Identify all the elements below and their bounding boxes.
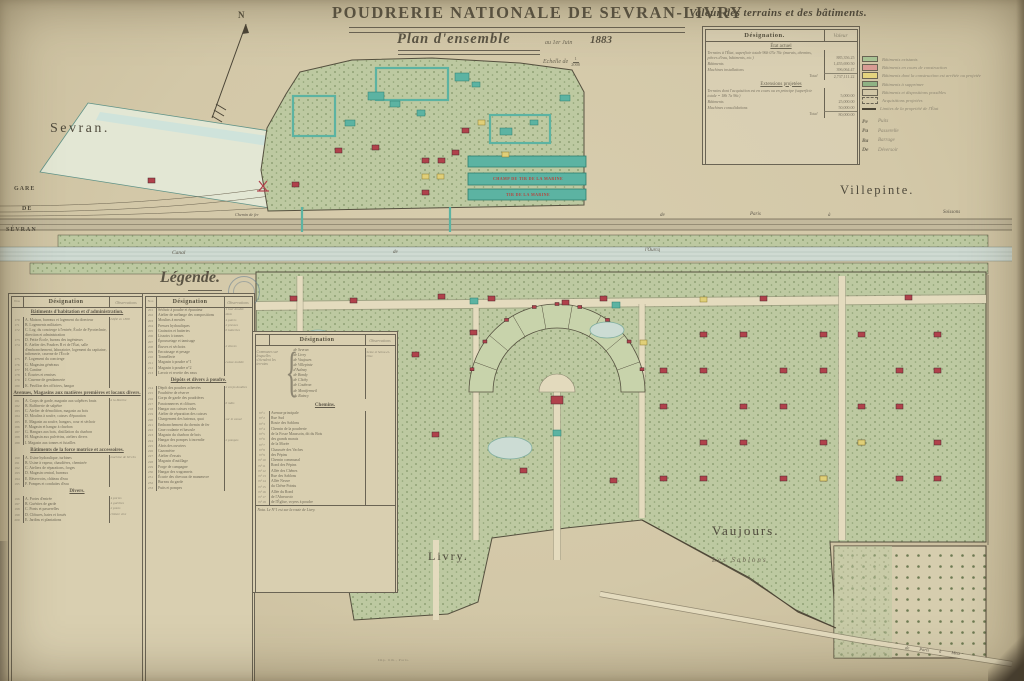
building-mark bbox=[335, 148, 342, 153]
building-mark bbox=[502, 152, 509, 157]
building-mark bbox=[530, 120, 538, 125]
legend-label: Bâtiments en cours de construction bbox=[882, 65, 947, 70]
building-mark bbox=[896, 368, 903, 373]
building-mark bbox=[700, 476, 707, 481]
legend-swatch bbox=[862, 97, 878, 104]
building-mark bbox=[372, 145, 379, 150]
building-mark bbox=[578, 305, 582, 308]
building-mark bbox=[532, 305, 536, 308]
legende-row: 200E. Jardins et plantations bbox=[12, 517, 143, 522]
map-date: au 1er Juin bbox=[545, 40, 572, 46]
building-mark bbox=[422, 158, 429, 163]
col-header-designation: Désignation. bbox=[706, 30, 824, 41]
building-mark bbox=[390, 101, 400, 107]
chemin-number: N°18 bbox=[256, 500, 270, 505]
legende-table-inner: NosDésignationObservationsBâtiments d'ha… bbox=[11, 296, 144, 681]
valeur-row-label: Terrains à l'État, superficie totale 96h… bbox=[706, 50, 824, 61]
communes-list: de Sevrande Livryde Vaujoursde Villepint… bbox=[294, 348, 365, 399]
abbrev-code: Ba bbox=[862, 138, 878, 144]
legende-table-header: NosDésignationObservations bbox=[146, 297, 252, 308]
building-mark bbox=[470, 368, 474, 371]
imprint: Imp. lith., Paris. bbox=[378, 658, 410, 662]
valeur-section-header: Extensions projetées bbox=[706, 80, 857, 88]
legende-section-header: Bâtiments d'habitation et d'administrati… bbox=[12, 308, 143, 318]
building-mark bbox=[700, 297, 707, 302]
color-legend-item: Limites de la propriété de l'État bbox=[862, 105, 1020, 113]
place-label-sevran: Sevran. bbox=[50, 121, 110, 137]
legend-label: Bâtiments dont la construction est arrêt… bbox=[882, 73, 981, 78]
building-mark bbox=[760, 296, 767, 301]
valeur-total-row: Total80,000.00 bbox=[706, 111, 857, 118]
row-observation bbox=[109, 440, 143, 445]
canal-label-3: l'Ourcq bbox=[645, 248, 660, 253]
building-mark bbox=[483, 340, 487, 343]
valeur-table: Désignation. Valeur État actuelTerrains … bbox=[702, 26, 860, 165]
building-mark bbox=[858, 440, 865, 445]
legende-row: 213Lavoir et recette des eaux bbox=[146, 371, 252, 376]
legende-table-inner: DésignationObservationsCommunes sur lesq… bbox=[255, 334, 396, 593]
col-header-no bbox=[256, 335, 270, 345]
col-header-no: Nos bbox=[12, 297, 24, 307]
row-designation: K. Pavillon des officiers, hangar bbox=[24, 383, 109, 388]
row-number: 172 bbox=[12, 328, 24, 338]
row-number: 174 bbox=[12, 343, 24, 357]
railway-label-1: de bbox=[660, 213, 665, 218]
building-mark bbox=[438, 158, 445, 163]
building-mark bbox=[600, 296, 607, 301]
color-legend-item: Bâtiments dont la construction est arrêt… bbox=[862, 72, 1020, 80]
building-mark bbox=[740, 440, 747, 445]
building-mark bbox=[640, 368, 644, 371]
building-mark bbox=[292, 182, 299, 187]
compass-n-label: N bbox=[238, 10, 245, 20]
legend-abbrev: PaPasserelle bbox=[862, 127, 1020, 137]
commune-item: du Raincy bbox=[294, 394, 365, 399]
legende-note: Nota. Le N°1 est sur la route de Livry. bbox=[256, 505, 395, 514]
plan-subtitle: Plan d'ensemble bbox=[397, 31, 511, 48]
col-header-no: Nos bbox=[146, 297, 157, 307]
abbrev-label: Puits bbox=[878, 119, 888, 124]
valeur-row-label: Terrains dont l'acquisition est en cours… bbox=[706, 88, 824, 99]
chemin-observation bbox=[365, 500, 395, 505]
valeur-row-value: 885,356.25 bbox=[824, 50, 857, 61]
map-sheet: N POUDRERIE NATIONALE DE SEVRAN-LIVRY Pl… bbox=[0, 0, 1024, 681]
railway-label-3: à bbox=[828, 213, 831, 218]
row-number: 180 bbox=[12, 383, 24, 388]
building-mark bbox=[417, 110, 425, 116]
scan-edge-right bbox=[1016, 0, 1024, 681]
col-header-designation: Désignation bbox=[157, 297, 224, 307]
valeur-total-label: Total bbox=[706, 111, 824, 118]
building-mark bbox=[562, 300, 569, 305]
canal-label-1: Canal bbox=[172, 250, 185, 256]
row-observation bbox=[109, 517, 143, 522]
legende-row: 180K. Pavillon des officiers, hangar bbox=[12, 383, 143, 388]
building-mark bbox=[660, 368, 667, 373]
legende-row: 174E. Atelier des Poudres B et de l'État… bbox=[12, 343, 143, 357]
chemin-row: N°18de l'Église, voyers à poudre bbox=[256, 500, 395, 505]
building-mark bbox=[905, 295, 912, 300]
row-observation bbox=[224, 485, 252, 490]
building-mark bbox=[820, 440, 827, 445]
communes-label: Communes sur lesquelles s'étendent les t… bbox=[256, 348, 286, 399]
abbrev-label: Déversoir bbox=[878, 148, 898, 153]
building-mark bbox=[605, 318, 609, 321]
building-mark bbox=[896, 404, 903, 409]
color-legend-item: Bâtiments existants bbox=[862, 55, 1020, 63]
legend-label: Bâtiments et dispositions possibles bbox=[882, 90, 946, 95]
valeur-row-value: 5,000.00 bbox=[824, 88, 857, 99]
legende-section-header: Bâtiments de la force motrice et accesso… bbox=[12, 445, 143, 455]
valeur-row: Terrains dont l'acquisition est en cours… bbox=[706, 88, 857, 99]
legende-table-2: NosDésignationObservations201Séchoir à p… bbox=[142, 293, 255, 681]
building-mark bbox=[740, 404, 747, 409]
building-mark bbox=[820, 332, 827, 337]
legend-swatch bbox=[862, 56, 878, 63]
valeur-row: Terrains à l'État, superficie totale 96h… bbox=[706, 50, 857, 61]
valeur-total-row: Total2,737,111.22 bbox=[706, 73, 857, 80]
color-legend-item: Bâtiments et dispositions possibles bbox=[862, 88, 1020, 96]
color-legend: Bâtiments existantsBâtiments en cours de… bbox=[862, 55, 1020, 155]
legende-row: 195F. Pompes et conduites d'eau bbox=[12, 481, 143, 486]
legende-section-header: Avenues, Magasins aux matières premières… bbox=[12, 388, 143, 398]
building-mark bbox=[422, 190, 429, 195]
building-mark bbox=[472, 82, 480, 87]
building-mark bbox=[148, 178, 155, 183]
chemin-designation: de l'Église, voyers à poudre bbox=[270, 500, 365, 505]
brace-glyph: { bbox=[286, 346, 294, 401]
legend-label: Bâtiments à supprimer bbox=[882, 82, 924, 87]
gare-label-1: GARE bbox=[14, 186, 35, 192]
row-number: 233 bbox=[146, 485, 157, 490]
legende-table-header: DésignationObservations bbox=[256, 335, 395, 346]
row-designation: Lavoir et recette des eaux bbox=[157, 371, 224, 376]
col-header-observations: Observations bbox=[365, 335, 395, 345]
legend-swatch bbox=[862, 108, 876, 110]
building-mark bbox=[555, 303, 559, 306]
champ-de-tir-label-2: TIR DE LA MARINE bbox=[470, 192, 586, 197]
valeur-table-header: Désignation. Valeur bbox=[706, 30, 857, 42]
valeur-section-header: État actuel bbox=[706, 42, 857, 50]
building-mark bbox=[455, 73, 469, 81]
legend-label: Bâtiments existants bbox=[882, 57, 918, 62]
abbrev-code: De bbox=[862, 147, 878, 153]
abbrev-label: Barrage bbox=[878, 138, 895, 143]
building-mark bbox=[345, 120, 355, 126]
building-mark bbox=[640, 340, 647, 345]
legende-table-header: NosDésignationObservations bbox=[12, 297, 143, 308]
col-header-valeur: Valeur bbox=[824, 30, 857, 41]
north-arrow bbox=[196, 8, 266, 128]
abbrev-label: Passerelle bbox=[878, 129, 899, 134]
building-mark bbox=[350, 298, 357, 303]
row-designation: C. Log. du concierge à l'entrée, École d… bbox=[24, 328, 109, 338]
scale-fraction: 1 2000 bbox=[571, 57, 580, 67]
row-observation bbox=[109, 343, 143, 357]
color-legend-item: Bâtiments à supprimer bbox=[862, 80, 1020, 88]
communes-observation: Seine et Seine-et-Oise bbox=[365, 348, 395, 399]
row-number: 213 bbox=[146, 371, 157, 376]
scale-label: Echelle de 1 2000 bbox=[543, 57, 580, 67]
row-designation: I. Magasin aux tonnes et futailles bbox=[24, 440, 109, 445]
legende-row: 172C. Log. du concierge à l'entrée, Écol… bbox=[12, 328, 143, 338]
gare-label-2: DE bbox=[22, 206, 32, 212]
legende-table-1: NosDésignationObservationsBâtiments d'ha… bbox=[8, 293, 146, 681]
col-header-observations: Observations bbox=[224, 297, 252, 307]
railway-label-0: Chemin de fer bbox=[235, 212, 259, 217]
building-mark bbox=[934, 368, 941, 373]
building-mark bbox=[290, 296, 297, 301]
building-mark bbox=[412, 352, 419, 357]
valeur-heading: Valeur des terrains et des bâtiments. bbox=[689, 7, 867, 19]
canal-label-2: de bbox=[393, 250, 398, 255]
row-number: 200 bbox=[12, 517, 24, 522]
building-mark bbox=[368, 92, 384, 100]
row-observation bbox=[109, 383, 143, 388]
building-mark bbox=[553, 430, 561, 436]
scan-edge-dark bbox=[0, 541, 9, 681]
building-mark bbox=[500, 128, 512, 135]
gare-label-3: SÉVRAN bbox=[6, 227, 37, 233]
building-mark bbox=[488, 296, 495, 301]
building-mark bbox=[780, 368, 787, 373]
row-number: 195 bbox=[12, 481, 24, 486]
col-header-observations: Observations bbox=[109, 297, 143, 307]
chemins-header: Chemins. bbox=[256, 401, 395, 411]
legende-table-3: DésignationObservationsCommunes sur lesq… bbox=[252, 331, 398, 593]
canal-bank-north bbox=[58, 235, 988, 247]
col-header-designation: Désignation bbox=[24, 297, 109, 307]
building-mark bbox=[820, 476, 827, 481]
building-mark bbox=[422, 174, 429, 179]
building-mark bbox=[470, 330, 477, 335]
place-label-les-sablons: Les Sablons bbox=[712, 556, 768, 564]
building-mark bbox=[627, 340, 631, 343]
color-legend-item: Bâtiments en cours de construction bbox=[862, 63, 1020, 71]
row-designation: Puits et pompes bbox=[157, 485, 224, 490]
legende-title: Légende. bbox=[160, 269, 220, 287]
place-label-vaujours: Vaujours. bbox=[712, 523, 779, 539]
north-compound bbox=[261, 58, 584, 211]
row-observation bbox=[109, 328, 143, 338]
legende-row: 233Puits et pompes bbox=[146, 485, 252, 490]
row-observation bbox=[224, 371, 252, 376]
place-label-livry: Livry. bbox=[428, 549, 469, 564]
building-mark bbox=[700, 332, 707, 337]
building-mark bbox=[462, 128, 469, 133]
row-number: 189 bbox=[12, 440, 24, 445]
abbrev-code: Pa bbox=[862, 128, 878, 134]
legende-row: 189I. Magasin aux tonnes et futailles bbox=[12, 440, 143, 445]
building-mark bbox=[820, 368, 827, 373]
building-mark bbox=[700, 440, 707, 445]
building-mark bbox=[700, 368, 707, 373]
legend-abbrev: BaBarrage bbox=[862, 136, 1020, 146]
legend-abbrev: DeDéversoir bbox=[862, 146, 1020, 156]
building-mark bbox=[520, 468, 527, 473]
legend-swatch bbox=[862, 72, 878, 79]
building-mark bbox=[437, 174, 444, 179]
row-designation: E. Atelier des Poudres B et de l'État, s… bbox=[24, 343, 109, 357]
building-mark bbox=[432, 432, 439, 437]
communes-block: Communes sur lesquelles s'étendent les t… bbox=[256, 346, 395, 401]
champ-de-tir-label-1: CHAMP DE TIR DE LA MARINE bbox=[470, 176, 586, 181]
building-mark bbox=[452, 150, 459, 155]
legende-table-inner: NosDésignationObservations201Séchoir à p… bbox=[145, 296, 253, 681]
legend-abbrev: PePuits bbox=[862, 117, 1020, 127]
building-mark bbox=[505, 318, 509, 321]
legend-label: Limites de la propriété de l'État bbox=[880, 106, 938, 111]
building-mark bbox=[610, 478, 617, 483]
building-mark bbox=[740, 332, 747, 337]
building-mark bbox=[858, 332, 865, 337]
canal bbox=[0, 247, 1012, 261]
building-mark bbox=[934, 476, 941, 481]
legend-swatch bbox=[862, 81, 878, 88]
place-label-villepinte: Villepinte. bbox=[840, 183, 914, 198]
building-mark bbox=[780, 404, 787, 409]
map-year: 1883 bbox=[590, 34, 612, 46]
plan-underline bbox=[398, 50, 540, 55]
railway-label-2: Paris bbox=[750, 212, 761, 217]
row-observation bbox=[109, 481, 143, 486]
abbrev-code: Pe bbox=[862, 119, 878, 125]
building-mark bbox=[780, 476, 787, 481]
building-mark bbox=[896, 476, 903, 481]
legend-label: Acquisitions projetées bbox=[882, 98, 923, 103]
legende-underline bbox=[188, 290, 222, 291]
building-mark bbox=[438, 294, 445, 299]
building-mark bbox=[858, 404, 865, 409]
building-mark bbox=[660, 476, 667, 481]
railway-label-4: Soissons bbox=[943, 210, 960, 215]
valeur-total-label: Total bbox=[706, 73, 824, 80]
map-title: POUDRERIE NATIONALE DE SEVRAN-LIVRY bbox=[332, 3, 698, 23]
valeur-total-value: 80,000.00 bbox=[824, 111, 857, 118]
building-mark bbox=[612, 302, 620, 308]
legend-swatch bbox=[862, 89, 878, 96]
building-mark bbox=[934, 332, 941, 337]
legend-swatch bbox=[862, 64, 878, 71]
row-designation: F. Pompes et conduites d'eau bbox=[24, 481, 109, 486]
building-mark bbox=[934, 440, 941, 445]
legende-section-header: Divers. bbox=[12, 487, 143, 497]
building-mark bbox=[470, 298, 478, 304]
col-header-designation: Désignation bbox=[270, 335, 365, 345]
building-mark bbox=[560, 95, 570, 101]
valeur-total-value: 2,737,111.22 bbox=[824, 73, 857, 80]
building-mark bbox=[551, 396, 563, 404]
row-designation: E. Jardins et plantations bbox=[24, 517, 109, 522]
building-mark bbox=[478, 120, 485, 125]
color-legend-item: Acquisitions projetées bbox=[862, 96, 1020, 104]
building-mark bbox=[660, 404, 667, 409]
